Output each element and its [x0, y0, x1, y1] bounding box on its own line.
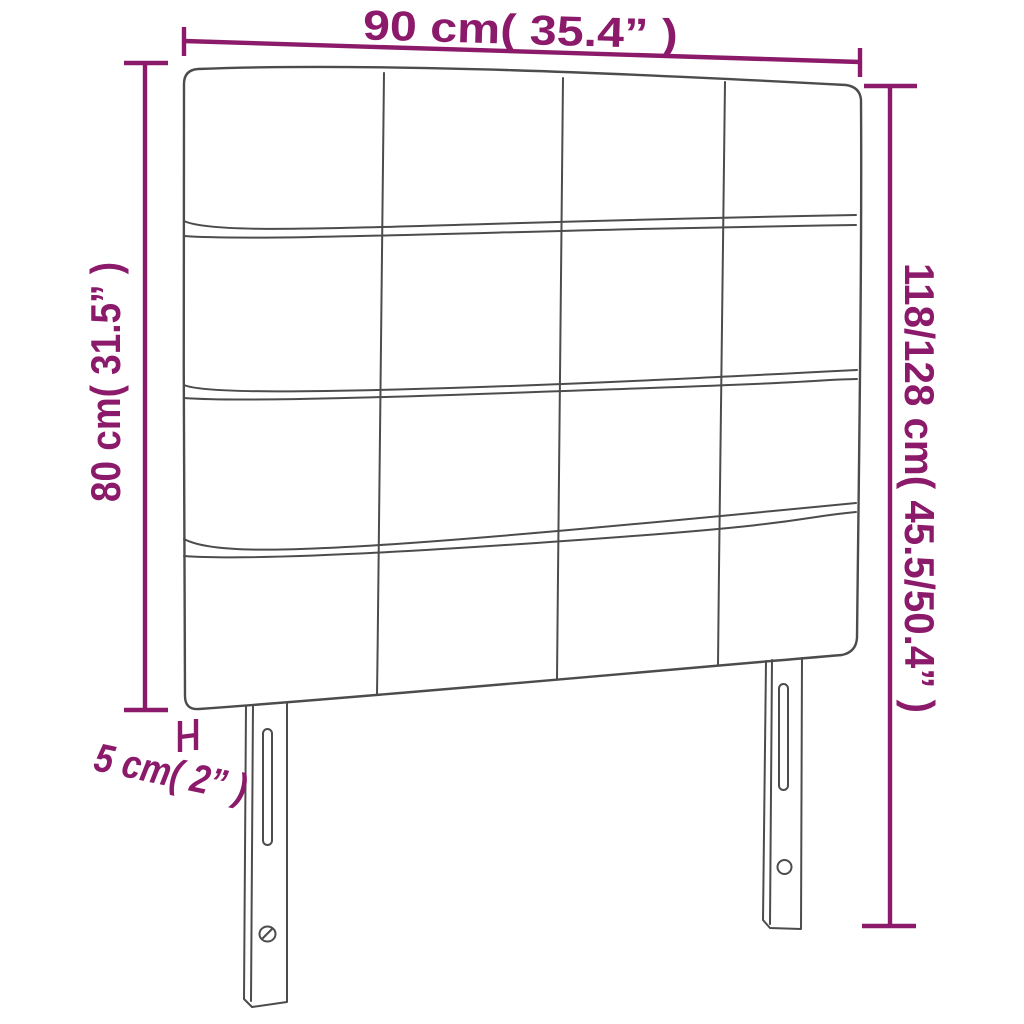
total-height-label: 118/128 cm( 45.5/50.4” ) — [896, 263, 943, 713]
depth-marker-connector — [180, 735, 196, 737]
background — [0, 0, 1024, 1024]
width-dimension-label: 90 cm( 35.4” ) — [362, 1, 678, 57]
headboard-dimension-diagram: 90 cm( 35.4” ) 80 cm( 31.5” ) 118/128 cm… — [0, 0, 1024, 1024]
headboard-height-label: 80 cm( 31.5” ) — [82, 262, 129, 502]
